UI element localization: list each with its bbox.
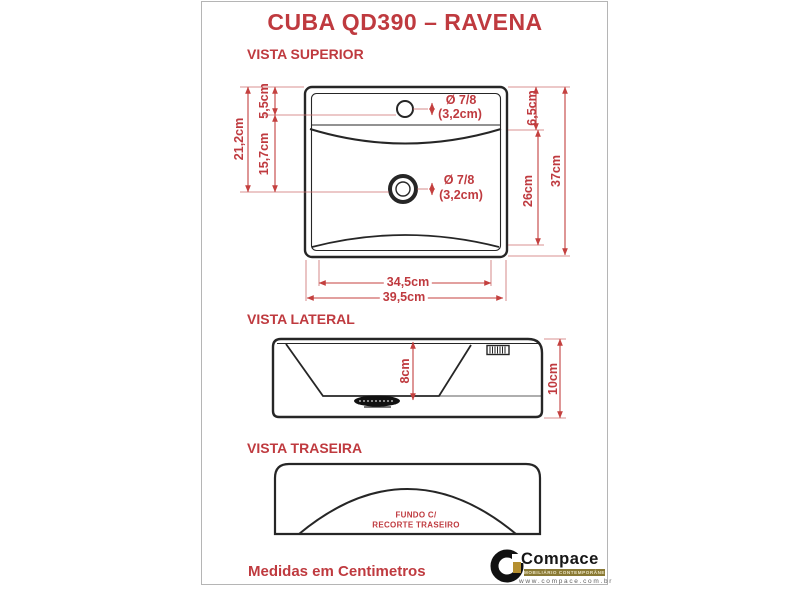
dim-left-total: 21,2cm xyxy=(233,118,246,160)
units-note: Medidas em Centimetros xyxy=(248,563,426,580)
dim-right-mid: 26cm xyxy=(522,175,535,207)
faucet-diameter-label-1: Ø 7/8 xyxy=(446,94,477,107)
spec-sheet-card: CUBA QD390 – RAVENA VISTA SUPERIOR VISTA… xyxy=(201,1,608,585)
faucet-diameter-label-2: (3,2cm) xyxy=(438,108,482,121)
dim-inner-depth: 8cm xyxy=(399,358,412,383)
compace-logo-name: Compace xyxy=(521,550,599,569)
drain-diameter-label-1: Ø 7/8 xyxy=(444,174,475,187)
compace-logo-tagline: MOBILIÁRIO CONTEMPORÂNEO xyxy=(524,569,605,576)
dim-bottom-outer: 39,5cm xyxy=(380,291,428,304)
page-title: CUBA QD390 – RAVENA xyxy=(202,9,608,36)
diagram-page: CUBA QD390 – RAVENA VISTA SUPERIOR VISTA… xyxy=(0,0,810,590)
dim-bottom-inner: 34,5cm xyxy=(384,276,432,289)
dim-right-top: 6,5cm xyxy=(526,90,539,125)
drain-diameter-label-2: (3,2cm) xyxy=(439,189,483,202)
dim-right-total: 37cm xyxy=(550,155,563,187)
dim-left-bottom: 15,7cm xyxy=(258,133,271,175)
vista-traseira-heading: VISTA TRASEIRA xyxy=(247,440,362,456)
vista-superior-heading: VISTA SUPERIOR xyxy=(247,46,364,62)
rear-note-line-2: RECORTE TRASEIRO xyxy=(372,521,459,530)
compace-website: www.compace.com.br xyxy=(519,578,613,585)
dim-left-top: 5,5cm xyxy=(258,83,271,118)
vista-lateral-heading: VISTA LATERAL xyxy=(247,311,355,327)
dim-outer-height: 10cm xyxy=(547,363,560,395)
rear-note-line-1: FUNDO C/ xyxy=(395,511,436,520)
spec-sheet-content: CUBA QD390 – RAVENA VISTA SUPERIOR VISTA… xyxy=(202,2,608,585)
